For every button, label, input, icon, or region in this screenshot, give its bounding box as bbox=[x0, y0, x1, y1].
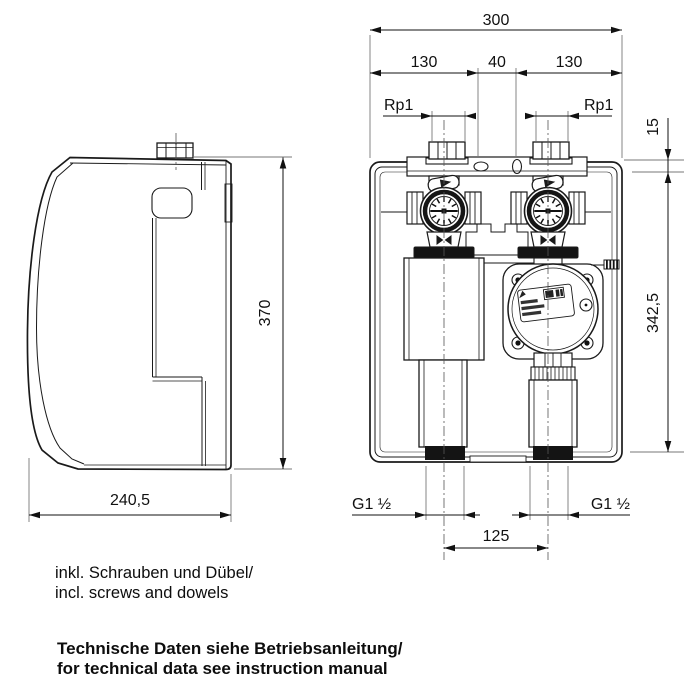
dim-top-inset: 15 bbox=[645, 118, 662, 136]
dim-overall-width: 300 bbox=[483, 12, 510, 29]
dim-side-depth: 240,5 bbox=[110, 492, 150, 509]
note-tech-en: for technical data see instruction manua… bbox=[57, 659, 388, 678]
side-view bbox=[27, 133, 232, 470]
dim-thread-bottom-left: G1 ½ bbox=[352, 496, 391, 513]
dim-pipe-spacing: 125 bbox=[483, 528, 510, 545]
port-top-right bbox=[530, 142, 572, 164]
dim-offset-right: 130 bbox=[556, 54, 583, 71]
cable-connector bbox=[604, 260, 619, 269]
vent-cap bbox=[157, 143, 193, 158]
pump-label bbox=[517, 284, 574, 322]
dim-center-gap: 40 bbox=[488, 54, 506, 71]
note-included-de: inkl. Schrauben und Dübel/ bbox=[55, 564, 253, 582]
dim-body-height: 342,5 bbox=[645, 293, 662, 333]
note-technical-data: Technische Daten siehe Betriebsanleitung… bbox=[57, 639, 402, 679]
dim-side-height: 370 bbox=[257, 300, 274, 327]
union-band-left bbox=[425, 446, 465, 460]
note-included: inkl. Schrauben und Dübel/incl. screws a… bbox=[55, 564, 253, 603]
dim-offset-left: 130 bbox=[411, 54, 438, 71]
note-tech-de: Technische Daten siehe Betriebsanleitung… bbox=[57, 639, 402, 658]
dim-thread-top-left: Rp1 bbox=[384, 97, 413, 114]
union-band-right bbox=[533, 446, 573, 460]
technical-drawing-page: 300 130 40 130 Rp1 Rp1 15 342,5 370 240,… bbox=[0, 0, 697, 699]
front-view bbox=[370, 142, 622, 462]
note-included-en: incl. screws and dowels bbox=[55, 584, 228, 602]
dim-thread-bottom-right: G1 ½ bbox=[591, 496, 630, 513]
ribbed-coupling bbox=[531, 367, 575, 380]
port-top-left bbox=[426, 142, 468, 164]
dim-thread-top-right: Rp1 bbox=[584, 97, 613, 114]
